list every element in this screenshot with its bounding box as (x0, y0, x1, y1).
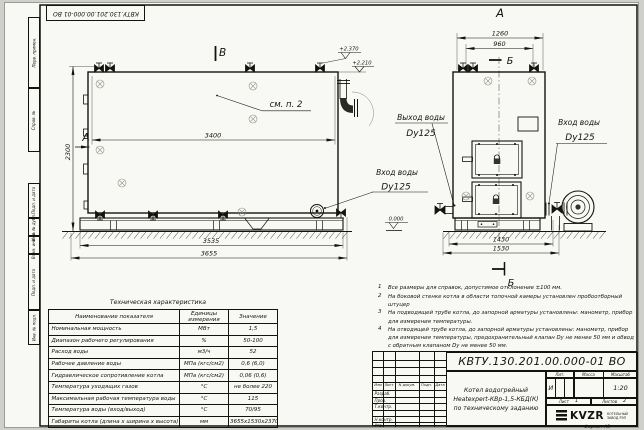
sign-grid-header: Лист (383, 383, 395, 387)
sheets-label: Листов (602, 399, 617, 404)
company-logo-bars-icon (556, 410, 567, 422)
dim-overall-length: 3655 (201, 250, 218, 258)
elevation-valve-top: +2.370 (339, 47, 359, 53)
sign-row-label: Разраб. (375, 391, 396, 396)
spec-cell: 3655х1530х2370 (229, 416, 278, 428)
spec-cell: Гидравлическое сопротивление котла (49, 370, 180, 382)
top-stamp-box: КВТУ.130.201.00.000-01 ВО (46, 5, 145, 21)
dim-skid-length: 3535 (203, 237, 220, 245)
note-text: На подводящей трубе котла, до запорной а… (388, 309, 636, 325)
spec-cell: Диапазон рабочего регулирования (49, 335, 180, 347)
spec-cell: Рабочее давление воды (49, 358, 180, 370)
sign-grid-header: Изм (373, 383, 383, 387)
note-text: На отводящей трубе котла, до запорной ар… (388, 326, 636, 350)
title-block: ИзмЛистN докум.Подп.ДатаРазраб.Пров.Т.ко… (372, 351, 637, 426)
spec-header: Наименование показателя (49, 310, 180, 324)
spec-table-block: Техническая характеристика Наименование … (48, 299, 268, 428)
table-row: Температура воды (вход/выход)°С70/95 (49, 405, 278, 417)
spec-table: Наименование показателяЕдиницы измерения… (48, 309, 278, 428)
note-number: 4 (378, 326, 388, 350)
sign-grid-header: N докум. (395, 383, 419, 387)
note-text: На боковой стенке котла в области топочн… (388, 293, 636, 309)
note-text: Все размеры для справок, допустимое откл… (388, 284, 636, 292)
sheet-value: 1 (575, 398, 578, 404)
outlet-dn-label: Dy125 (406, 129, 436, 139)
view-a-arrow-label: А (81, 132, 89, 144)
note-number: 1 (378, 284, 388, 292)
elevation-body-top: +2.210 (352, 61, 372, 67)
spec-cell: Максимальная рабочая температура воды (49, 393, 180, 405)
table-row: Номинальная мощностьМВт1,5 (49, 324, 278, 336)
notes-block: 1Все размеры для справок, допустимое отк… (378, 284, 636, 351)
dim-front-overall: 1530 (493, 245, 510, 253)
sign-grid-header: Дата (434, 383, 446, 387)
note-item: 2На боковой стенке котла в области топоч… (378, 293, 636, 309)
format-note: Формат А3 (584, 425, 610, 430)
sign-row-label: Пров. (375, 398, 396, 403)
table-row: Максимальная рабочая температура воды°С1… (49, 393, 278, 405)
note-item: 4На отводящей трубе котла, до запорной а… (378, 326, 636, 350)
spec-cell: мм (180, 416, 229, 428)
note-item: 3На подводящей трубе котла, до запорной … (378, 309, 636, 325)
spec-cell: Габариты котла (длина х ширина х высота) (49, 416, 180, 428)
spec-cell: °С (180, 381, 229, 393)
table-row: Расход водым3/ч52 (49, 347, 278, 359)
dim-body-length: 3400 (205, 132, 222, 140)
spec-cell: Температура уходящих газов (49, 381, 180, 393)
spec-cell: 0,6 (6,0) (229, 358, 278, 370)
spec-cell: м3/ч (180, 347, 229, 359)
spec-cell: 50-100 (229, 335, 278, 347)
inlet-side-dn-label: Dy125 (381, 183, 411, 193)
top-stamp-number: КВТУ.130.201.00.000-01 ВО (53, 10, 139, 17)
company-name-line2: ЗАВОД РЭП (607, 416, 628, 420)
table-row: Габариты котла (длина х ширина х высота)… (49, 416, 278, 428)
spec-header: Значение (229, 310, 278, 324)
note-number: 2 (378, 293, 388, 309)
inlet-front-label: Вход воды (558, 118, 600, 127)
spec-table-title: Техническая характеристика (48, 299, 268, 306)
company-logo-text: KVZR (570, 410, 604, 422)
sheet-label: Лист (559, 399, 569, 404)
lit-cell-3 (564, 378, 574, 399)
spec-cell: Температура воды (вход/выход) (49, 405, 180, 417)
spec-cell: 1,5 (229, 324, 278, 336)
spec-header: Единицы измерения (180, 310, 229, 324)
sign-row-label: Н.контр. (375, 417, 396, 422)
spec-cell: МВт (180, 324, 229, 336)
format-note-text: Формат А3 (584, 425, 610, 430)
door-lock-body (493, 199, 500, 205)
company-name: КОТЕЛЬНЫЙ ЗАВОД РЭП (607, 412, 628, 420)
product-name-line1: Котел водогрейный (464, 387, 528, 394)
spec-cell: °С (180, 393, 229, 405)
spec-cell: Номинальная мощность (49, 324, 180, 336)
table-row: Температура уходящих газов°Сне более 220 (49, 381, 278, 393)
product-name: Котел водогрейный Heatexpert-КВр-1,5-КБД… (446, 371, 546, 427)
note-item: 1Все размеры для справок, допустимое отк… (378, 284, 636, 292)
sheets-value: 2 (623, 398, 626, 404)
see-note-label: см. п. 2 (270, 100, 303, 110)
dim-front-skid: 1430 (493, 236, 510, 244)
table-row: Рабочее давление водыМПа (кгс/см2)0,6 (6… (49, 358, 278, 370)
spec-cell: Расход воды (49, 347, 180, 359)
doc-number: КВТУ.130.201.00.000-01 ВО (446, 352, 638, 371)
inlet-side-label: Вход воды (376, 168, 418, 177)
mass-value (574, 378, 604, 399)
scale-value: 1:20 (603, 378, 638, 399)
section-b-top-label: Б (507, 56, 514, 67)
product-name-line2: Heatexpert-КВр-1,5-КБД(К) (453, 396, 538, 403)
sign-grid-header: Подп. (419, 383, 434, 387)
dim-front-top: 960 (493, 40, 505, 48)
door-lock-body (494, 159, 501, 165)
sign-row-label: Т.контр. (375, 404, 396, 409)
spec-cell: % (180, 335, 229, 347)
sign-row-label: Утв. (375, 423, 396, 428)
spec-cell: МПа (кгс/см2) (180, 370, 229, 382)
spec-cell: не более 220 (229, 381, 278, 393)
spec-cell: МПа (кгс/см2) (180, 358, 229, 370)
title-block-sign-grid: ИзмЛистN докум.Подп.ДатаРазраб.Пров.Т.ко… (373, 352, 446, 427)
spec-cell: 70/95 (229, 405, 278, 417)
spec-cell: 115 (229, 393, 278, 405)
outlet-label: Выход воды (397, 113, 445, 122)
table-row: Гидравлическое сопротивление котлаМПа (к… (49, 370, 278, 382)
spec-cell: 52 (229, 347, 278, 359)
scanned-drawing-page: kotlam-kv.kzkotlam-kv.kzkotlam-kv.kzkotl… (0, 0, 644, 430)
view-b-label: В (219, 47, 226, 59)
spec-cell: °С (180, 405, 229, 417)
note-number: 3 (378, 309, 388, 325)
dim-front-width: 1260 (492, 30, 509, 38)
table-row: Диапазон рабочего регулирования%50-100 (49, 335, 278, 347)
product-name-line3: по техническому заданию (454, 405, 539, 412)
spec-cell: 0,06 (0,6) (229, 370, 278, 382)
elevation-ground: 0.000 (389, 217, 405, 223)
dim-height: 2300 (64, 144, 72, 161)
view-a-title: А (495, 6, 504, 20)
inlet-front-dn-label: Dy125 (565, 133, 595, 143)
